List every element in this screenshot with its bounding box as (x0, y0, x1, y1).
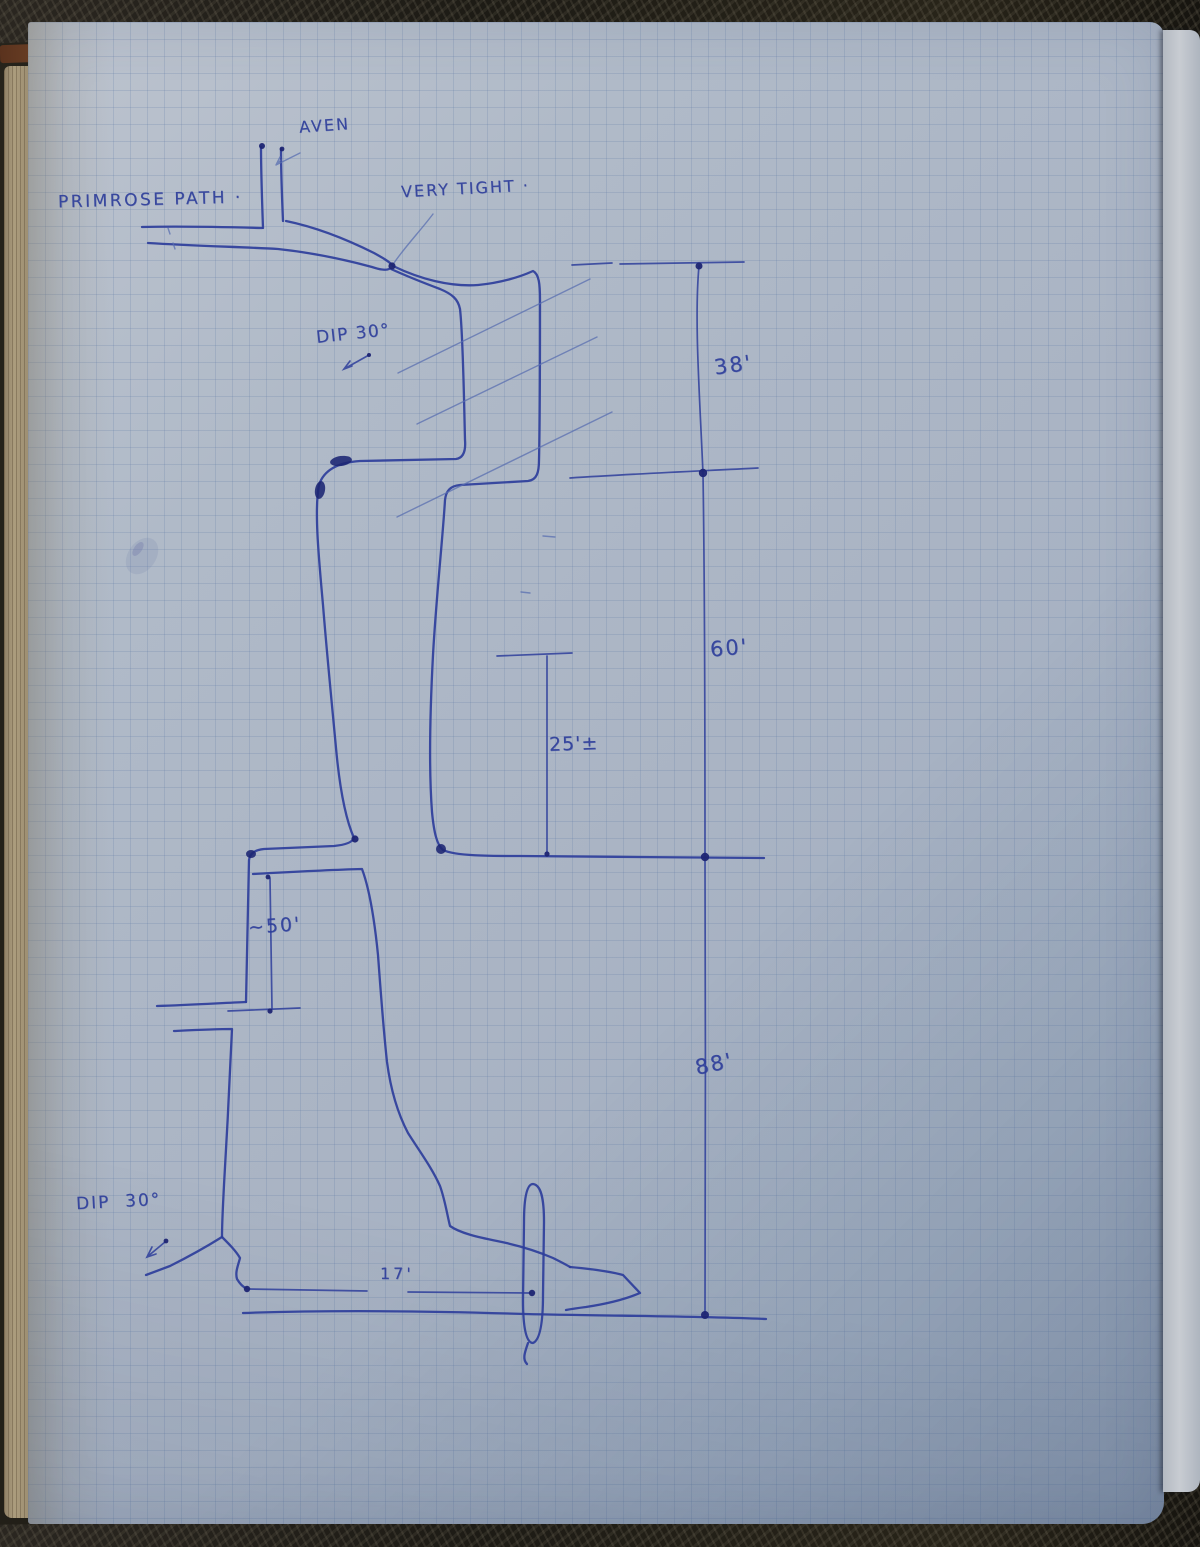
measurement-50ft: ~50' (247, 913, 302, 939)
label-aven: AVEN (298, 114, 350, 137)
measurement-25ft: 25'± (549, 732, 599, 756)
notebook-page (28, 22, 1164, 1524)
measurement-60ft: 60' (709, 634, 749, 661)
adjacent-page-edge (1163, 30, 1200, 1492)
measurement-17ft: 17' (380, 1264, 414, 1283)
notebook-page-edges (4, 66, 30, 1518)
photo-of-cave-survey-notebook: PRIMROSE PATH · AVEN VERY TIGHT · DIP 30… (0, 0, 1200, 1547)
